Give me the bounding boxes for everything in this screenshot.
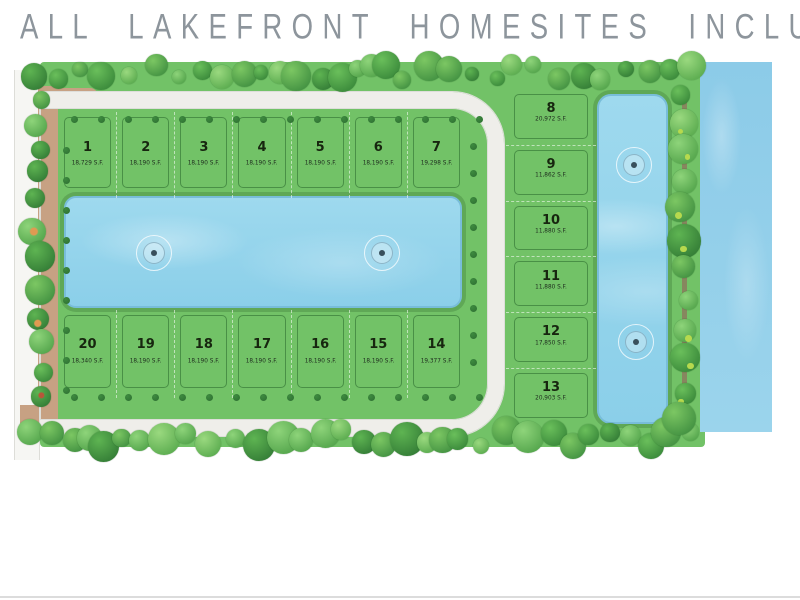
lot-cell-9: 911,862 S.F. [506,146,596,202]
lot-cell-2: 218,190 S.F. [117,112,175,198]
lot-number: 7 [408,141,465,154]
lot-cell-4: 418,190 S.F. [233,112,291,198]
lot-number: 8 [506,102,596,115]
fountain-center [151,250,157,256]
lot-number: 20 [59,338,116,351]
lot-area-label: 18,190 S.F. [300,358,341,364]
fountain-icon [616,147,652,183]
lot-cell-18: 1818,190 S.F. [175,310,233,398]
lot-area-label: 20,903 S.F. [519,395,584,401]
lot-number: 12 [506,325,596,338]
lot-number: 10 [506,214,596,227]
lot-area-label: 18,190 S.F. [125,358,166,364]
lot-area-label: 18,729 S.F. [67,160,108,166]
lot-number: 19 [117,338,174,351]
lot-cell-1: 118,729 S.F. [59,112,117,198]
lot-area-label: 18,190 S.F. [125,160,166,166]
lot-cell-11: 1111,880 S.F. [506,257,596,313]
lot-number: 5 [292,141,349,154]
lot-row-top: 118,729 S.F.218,190 S.F.318,190 S.F.418,… [59,112,465,198]
page-bottom-border [0,596,800,598]
walking-path [682,92,687,422]
lot-cell-19: 1918,190 S.F. [117,310,175,398]
lot-area-label: 19,298 S.F. [416,160,457,166]
lot-area-label: 18,190 S.F. [358,160,399,166]
lot-cell-6: 618,190 S.F. [350,112,408,198]
fountain-icon [618,324,654,360]
lot-cell-20: 2018,340 S.F. [59,310,117,398]
fountain-center [379,250,385,256]
site-plan-page: ALL LAKEFRONT HOMESITES INCLUDED [0,0,800,600]
lot-cell-5: 518,190 S.F. [292,112,350,198]
lot-area-label: 11,880 S.F. [519,228,584,234]
lot-area-label: 20,972 S.F. [519,116,584,122]
lot-cell-17: 1718,190 S.F. [233,310,291,398]
lot-number: 13 [506,381,596,394]
lot-column-right: 820,972 S.F.911,862 S.F.1011,880 S.F.111… [506,90,596,424]
lot-row-bottom: 2018,340 S.F.1918,190 S.F.1818,190 S.F.1… [59,310,465,398]
canal-waterway [700,62,772,432]
lot-number: 2 [117,141,174,154]
lot-area-label: 18,190 S.F. [358,358,399,364]
lot-area-label: 18,190 S.F. [183,358,224,364]
left-perimeter-road [14,70,40,460]
lot-area-label: 18,190 S.F. [300,160,341,166]
lot-area-label: 18,340 S.F. [67,358,108,364]
lot-area-label: 11,862 S.F. [519,172,584,178]
lot-cell-16: 1618,190 S.F. [292,310,350,398]
lot-cell-12: 1217,850 S.F. [506,313,596,369]
lot-area-label: 18,190 S.F. [183,160,224,166]
fountain-center [631,162,637,168]
lot-number: 16 [292,338,349,351]
page-title: ALL LAKEFRONT HOMESITES INCLUDED [20,8,780,48]
lot-number: 1 [59,141,116,154]
lot-cell-13: 1320,903 S.F. [506,369,596,424]
fountain-icon [136,235,172,271]
lot-cell-14: 1419,377 S.F. [408,310,465,398]
lot-number: 18 [175,338,232,351]
lot-number: 4 [233,141,290,154]
fountain-icon [364,235,400,271]
lot-cell-8: 820,972 S.F. [506,90,596,146]
fountain-center [633,339,639,345]
lot-area-label: 18,190 S.F. [241,358,282,364]
lot-cell-7: 719,298 S.F. [408,112,465,198]
lot-number: 17 [233,338,290,351]
lot-number: 3 [175,141,232,154]
lot-number: 14 [408,338,465,351]
lot-number: 6 [350,141,407,154]
lot-number: 9 [506,158,596,171]
central-lake [64,196,462,308]
lot-number: 11 [506,270,596,283]
east-lake [597,94,668,424]
lot-area-label: 19,377 S.F. [416,358,457,364]
lot-area-label: 11,880 S.F. [519,284,584,290]
lot-cell-10: 1011,880 S.F. [506,202,596,258]
lot-cell-3: 318,190 S.F. [175,112,233,198]
site-plan: 118,729 S.F.218,190 S.F.318,190 S.F.418,… [0,0,800,600]
lot-cell-15: 1518,190 S.F. [350,310,408,398]
lot-area-label: 18,190 S.F. [241,160,282,166]
lot-number: 15 [350,338,407,351]
lot-area-label: 17,850 S.F. [519,340,584,346]
